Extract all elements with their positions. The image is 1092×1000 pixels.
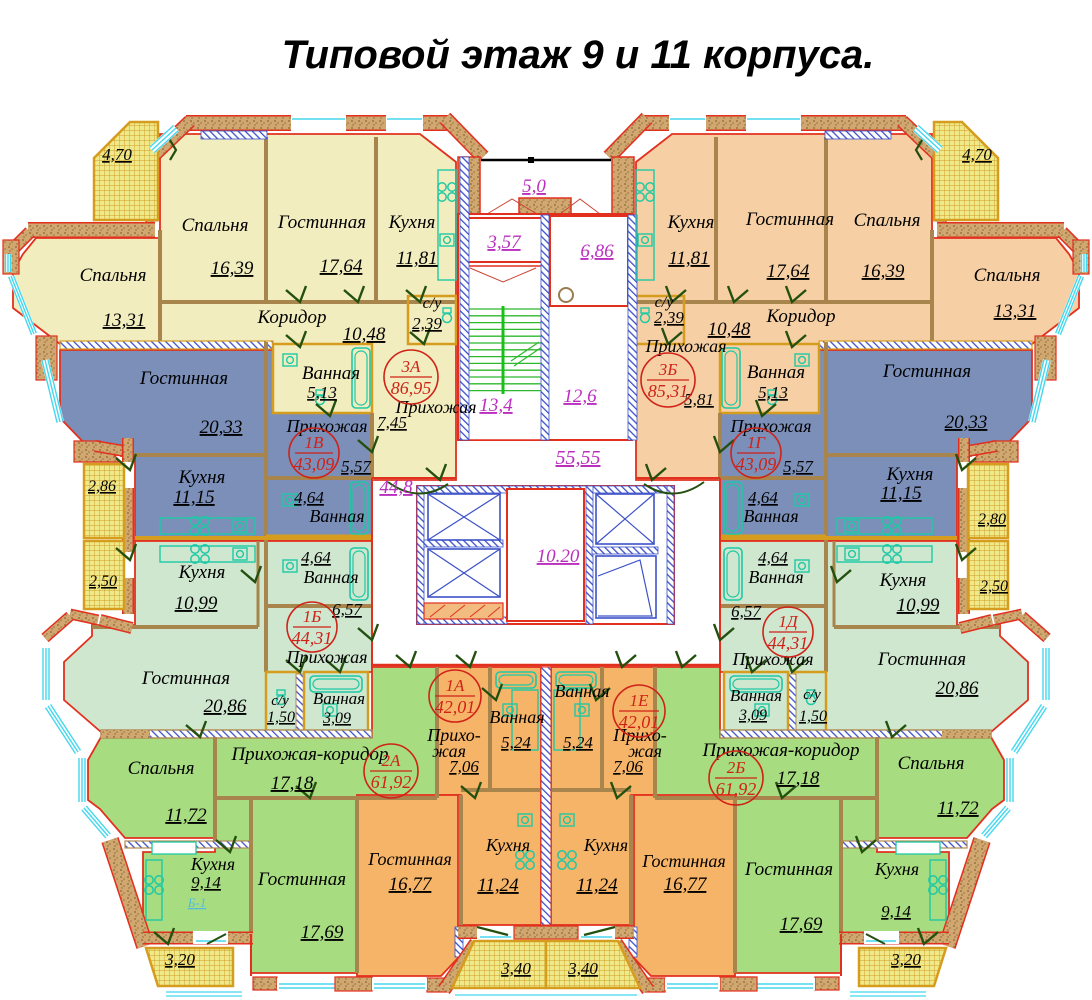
svg-text:Кухня: Кухня <box>388 212 436 233</box>
svg-text:с/у: с/у <box>271 693 289 709</box>
svg-text:Спальня: Спальня <box>128 758 195 779</box>
svg-text:10,99: 10,99 <box>175 593 218 614</box>
svg-text:1,50: 1,50 <box>799 708 827 725</box>
svg-text:Гостинная: Гостинная <box>641 851 726 871</box>
svg-text:44,31: 44,31 <box>292 628 333 648</box>
svg-text:5,24: 5,24 <box>501 733 531 752</box>
svg-text:1Б: 1Б <box>303 607 322 626</box>
svg-text:3,20: 3,20 <box>164 950 195 969</box>
svg-text:85,31: 85,31 <box>648 381 689 401</box>
svg-text:Ванная: Ванная <box>303 567 358 587</box>
svg-text:3А: 3А <box>401 357 422 376</box>
svg-text:1А: 1А <box>446 676 466 695</box>
svg-text:Гостинная: Гостинная <box>745 209 834 230</box>
svg-text:6,57: 6,57 <box>731 602 762 621</box>
svg-text:1,50: 1,50 <box>267 709 295 726</box>
svg-text:Спальня: Спальня <box>854 210 921 231</box>
svg-text:Ванная: Ванная <box>747 362 805 383</box>
svg-text:Кухня: Кухня <box>879 570 927 591</box>
svg-text:1Д: 1Д <box>778 612 799 631</box>
svg-text:Кухня: Кухня <box>178 467 226 488</box>
svg-text:42,01: 42,01 <box>435 697 476 717</box>
svg-text:10,99: 10,99 <box>897 595 940 616</box>
svg-text:6,86: 6,86 <box>580 241 614 262</box>
svg-text:44,31: 44,31 <box>768 633 809 653</box>
svg-text:20,86: 20,86 <box>204 696 247 717</box>
svg-text:1В: 1В <box>305 433 325 452</box>
svg-text:Ванная: Ванная <box>313 689 365 708</box>
svg-text:с/у: с/у <box>803 687 821 703</box>
svg-text:7,45: 7,45 <box>377 413 407 432</box>
svg-text:11,72: 11,72 <box>937 798 979 819</box>
svg-text:4,64: 4,64 <box>301 548 331 567</box>
svg-text:Гостинная: Гостинная <box>877 649 966 670</box>
svg-text:2,50: 2,50 <box>980 578 1008 595</box>
svg-text:Гостинная: Гостинная <box>139 368 228 389</box>
svg-text:Спальня: Спальня <box>898 753 965 774</box>
svg-text:2,39: 2,39 <box>412 314 442 333</box>
svg-text:11,81: 11,81 <box>396 248 437 269</box>
svg-text:7,06: 7,06 <box>613 757 643 776</box>
svg-text:11,24: 11,24 <box>477 875 519 896</box>
svg-text:11,24: 11,24 <box>576 875 618 896</box>
svg-text:Кухня: Кухня <box>485 835 530 855</box>
svg-text:Спальня: Спальня <box>974 265 1041 286</box>
svg-text:13,31: 13,31 <box>103 310 146 331</box>
svg-text:4,64: 4,64 <box>748 488 778 507</box>
svg-text:Гостинная: Гостинная <box>744 859 833 880</box>
svg-text:Коридор: Коридор <box>765 306 835 327</box>
svg-text:55,55: 55,55 <box>556 447 601 469</box>
svg-text:3,09: 3,09 <box>322 710 351 727</box>
svg-text:12,6: 12,6 <box>563 386 597 407</box>
svg-text:Гостинная: Гостинная <box>277 212 366 233</box>
svg-text:16,77: 16,77 <box>664 874 708 895</box>
svg-text:86,95: 86,95 <box>391 378 432 398</box>
svg-text:Гостинная: Гостинная <box>257 869 346 890</box>
svg-text:3,57: 3,57 <box>486 232 522 253</box>
svg-text:Ванная: Ванная <box>309 506 364 526</box>
svg-text:1Г: 1Г <box>747 433 767 452</box>
svg-text:11,15: 11,15 <box>880 483 921 504</box>
svg-text:Прихожая: Прихожая <box>286 647 368 667</box>
svg-text:5,81: 5,81 <box>684 390 714 409</box>
svg-text:42,01: 42,01 <box>619 712 660 732</box>
svg-text:3,20: 3,20 <box>890 950 921 969</box>
svg-text:Ванная: Ванная <box>743 506 798 526</box>
svg-text:17,18: 17,18 <box>271 773 314 794</box>
svg-text:43,09: 43,09 <box>736 454 777 474</box>
svg-text:Ванная: Ванная <box>489 707 544 727</box>
svg-text:Кухня: Кухня <box>886 464 934 485</box>
svg-text:13,31: 13,31 <box>994 301 1037 322</box>
svg-text:2,39: 2,39 <box>654 308 684 327</box>
svg-text:7,06: 7,06 <box>449 757 479 776</box>
svg-text:1Е: 1Е <box>630 691 650 710</box>
svg-text:Кухня: Кухня <box>178 562 226 583</box>
svg-text:5,0: 5,0 <box>522 176 546 197</box>
svg-text:Прихожая-коридор: Прихожая-коридор <box>701 740 859 761</box>
svg-text:11,81: 11,81 <box>668 248 709 269</box>
svg-text:17,64: 17,64 <box>320 256 363 277</box>
svg-text:5,13: 5,13 <box>307 383 337 402</box>
svg-text:5,24: 5,24 <box>563 733 593 752</box>
svg-text:Гостинная: Гостинная <box>367 849 452 869</box>
svg-text:Прихожая: Прихожая <box>645 336 727 356</box>
svg-text:17,69: 17,69 <box>780 914 823 935</box>
svg-text:20,33: 20,33 <box>945 412 988 433</box>
svg-text:4,64: 4,64 <box>758 548 788 567</box>
svg-text:2Б: 2Б <box>727 758 746 777</box>
svg-text:11,15: 11,15 <box>173 487 214 508</box>
svg-text:5,57: 5,57 <box>783 457 814 476</box>
svg-text:2А: 2А <box>382 751 402 770</box>
svg-text:Гостинная: Гостинная <box>882 361 971 382</box>
svg-text:Ванная: Ванная <box>302 363 360 384</box>
svg-text:Ванная: Ванная <box>554 681 609 701</box>
svg-text:3,40: 3,40 <box>500 959 531 978</box>
svg-text:2,50: 2,50 <box>89 573 117 590</box>
svg-text:16,39: 16,39 <box>862 261 905 282</box>
svg-text:20,86: 20,86 <box>936 678 979 699</box>
svg-text:3Б: 3Б <box>658 360 678 379</box>
svg-text:10.20: 10.20 <box>537 546 580 567</box>
svg-text:Типовой этаж 9 и 11 корпуса.: Типовой этаж 9 и 11 корпуса. <box>282 33 875 77</box>
svg-text:11,72: 11,72 <box>165 805 207 826</box>
svg-text:3,09: 3,09 <box>738 707 767 724</box>
svg-text:Ванная: Ванная <box>748 567 803 587</box>
svg-text:4,70: 4,70 <box>962 145 992 164</box>
svg-text:20,33: 20,33 <box>200 417 243 438</box>
svg-text:Ванная: Ванная <box>730 686 782 705</box>
svg-text:16,77: 16,77 <box>389 874 433 895</box>
svg-text:с/у: с/у <box>423 295 443 312</box>
svg-text:3,40: 3,40 <box>567 959 598 978</box>
svg-text:Спальня: Спальня <box>182 215 249 236</box>
svg-text:2,80: 2,80 <box>978 511 1006 528</box>
svg-text:Гостинная: Гостинная <box>141 668 230 689</box>
svg-text:43,09: 43,09 <box>294 454 335 474</box>
svg-text:16,39: 16,39 <box>211 258 254 279</box>
svg-text:17,18: 17,18 <box>777 768 820 789</box>
svg-text:5,57: 5,57 <box>341 457 372 476</box>
svg-text:Спальня: Спальня <box>80 265 147 286</box>
svg-text:61,92: 61,92 <box>371 772 412 792</box>
svg-text:Коридор: Коридор <box>256 307 326 328</box>
svg-text:Кухня: Кухня <box>583 835 628 855</box>
svg-text:9,14: 9,14 <box>191 873 221 892</box>
svg-text:13,4: 13,4 <box>479 395 513 416</box>
svg-text:17,64: 17,64 <box>767 261 810 282</box>
svg-text:10,48: 10,48 <box>343 324 386 345</box>
svg-text:61,92: 61,92 <box>716 779 757 799</box>
svg-text:6,57: 6,57 <box>332 600 363 619</box>
svg-text:17,69: 17,69 <box>301 922 344 943</box>
svg-text:44,8: 44,8 <box>379 477 413 498</box>
svg-text:9,14: 9,14 <box>881 902 911 921</box>
svg-text:5,13: 5,13 <box>758 383 788 402</box>
svg-text:4,64: 4,64 <box>294 488 324 507</box>
svg-text:Кухня: Кухня <box>667 212 715 233</box>
svg-text:4,70: 4,70 <box>102 145 132 164</box>
svg-text:2,86: 2,86 <box>88 478 116 495</box>
svg-text:Б-1: Б-1 <box>187 895 207 910</box>
svg-text:Кухня: Кухня <box>874 859 919 879</box>
svg-text:Кухня: Кухня <box>190 854 235 874</box>
